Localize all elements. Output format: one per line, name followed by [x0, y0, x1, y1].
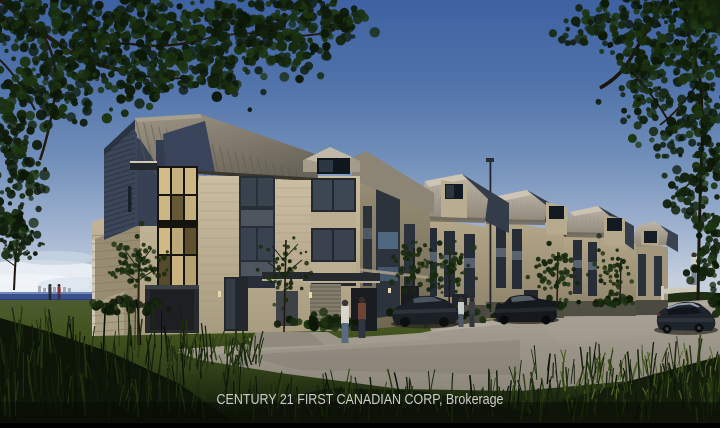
svg-text:CENTURY 21 FIRST CANADIAN CORP: CENTURY 21 FIRST CANADIAN CORP, Brokerag… [217, 392, 504, 408]
